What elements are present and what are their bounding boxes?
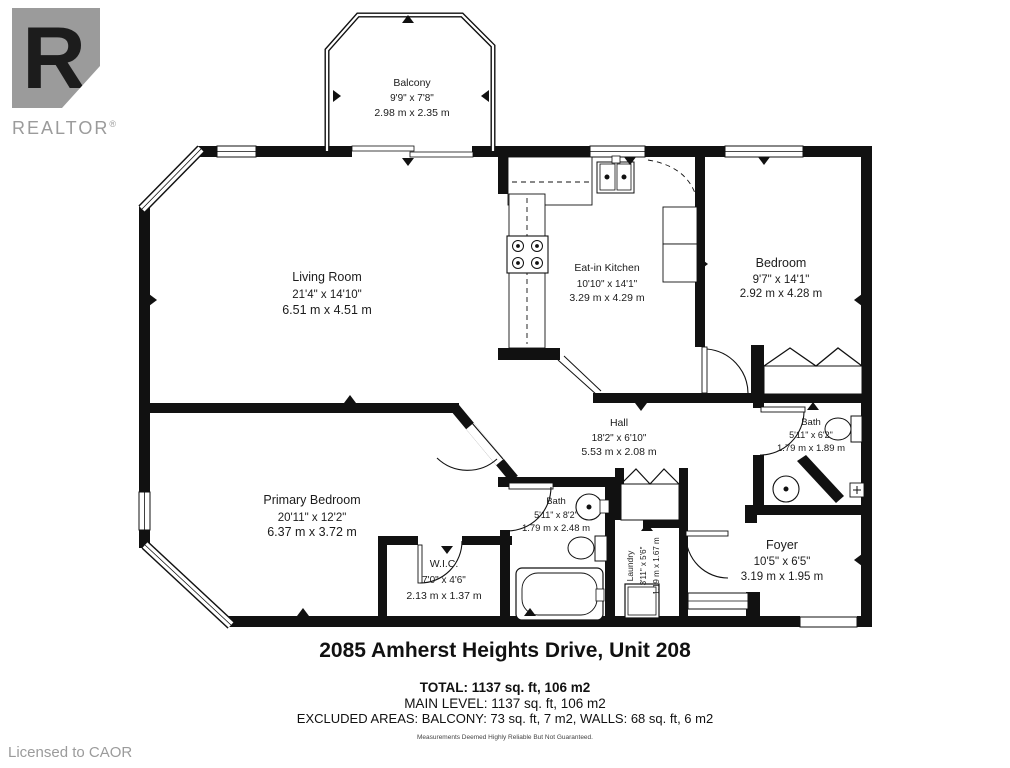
room-dim-imperial: 18'2" x 6'10"	[592, 433, 647, 444]
summary-excluded-areas: EXCLUDED AREAS: BALCONY: 73 sq. ft, 7 m2…	[0, 711, 1010, 726]
room-label-balcony: Balcony 9'9" x 7'8" 2.98 m x 2.35 m	[374, 77, 450, 119]
window	[590, 146, 645, 157]
room-dim-imperial: 9'7" x 14'1"	[753, 274, 810, 286]
room-dim-metric: 1.19 m x 1.67 m	[652, 537, 661, 595]
room-label-bedroom: Bedroom 9'7" x 14'1" 2.92 m x 4.28 m	[740, 256, 822, 300]
room-dim-imperial: 5'11" x 8'2"	[534, 510, 578, 520]
room-name: Bath	[546, 496, 566, 507]
stove-icon	[507, 236, 548, 273]
sliding-door	[352, 146, 473, 157]
room-dim-imperial: 20'11" x 12'2"	[278, 512, 347, 524]
room-dim-metric: 3.19 m x 1.95 m	[741, 571, 823, 583]
room-name: Eat-in Kitchen	[574, 262, 640, 274]
room-label-foyer: Foyer 10'5" x 6'5" 3.19 m x 1.95 m	[741, 538, 823, 583]
toilet-icon	[568, 536, 607, 561]
room-dim-metric: 1.79 m x 2.48 m	[522, 523, 590, 534]
room-name: Living Room	[292, 270, 361, 284]
dimension-arrows	[149, 15, 862, 616]
room-name: W.I.C.	[430, 558, 459, 570]
room-dim-metric: 5.53 m x 2.08 m	[581, 446, 657, 458]
room-dim-metric: 1.79 m x 1.89 m	[777, 443, 845, 454]
interior-walls	[139, 146, 872, 627]
room-label-living-room: Living Room 21'4" x 14'10" 6.51 m x 4.51…	[282, 270, 372, 317]
room-dim-metric: 6.51 m x 4.51 m	[282, 303, 372, 317]
license-text: Licensed to CAOR	[8, 744, 132, 761]
diagonal-window	[145, 545, 231, 625]
room-label-kitchen: Eat-in Kitchen 10'10" x 14'1" 3.29 m x 4…	[569, 262, 645, 304]
room-dim-metric: 2.98 m x 2.35 m	[374, 107, 450, 119]
room-label-hall: Hall 18'2" x 6'10" 5.53 m x 2.08 m	[581, 417, 657, 458]
floor-plan-page: R REALTOR®	[0, 0, 1010, 768]
bathroom-sink-icon	[576, 494, 609, 520]
room-dim-imperial: 10'5" x 6'5"	[754, 556, 811, 568]
window	[725, 146, 803, 157]
bathroom-sink-icon	[773, 476, 799, 502]
room-name: Bedroom	[756, 256, 807, 270]
room-dim-imperial: 9'9" x 7'8"	[390, 93, 434, 104]
room-dim-imperial: 7'0" x 4'6"	[422, 575, 466, 586]
kitchen-opening	[558, 356, 601, 395]
summary-total: TOTAL: 1137 sq. ft, 106 m2	[0, 680, 1010, 695]
door-swing	[437, 423, 503, 470]
room-dim-metric: 2.92 m x 4.28 m	[740, 288, 822, 300]
room-name: Bath	[801, 417, 821, 428]
entry-door	[800, 617, 857, 627]
door-swing	[686, 531, 728, 578]
hall-closet	[621, 469, 679, 520]
room-dim-metric: 3.29 m x 4.29 m	[569, 292, 645, 304]
room-dim-imperial: 10'10" x 14'1"	[577, 279, 638, 290]
diagonal-window	[142, 149, 201, 209]
room-dim-imperial: 21'4" x 14'10"	[292, 289, 361, 301]
room-dim-imperial: 5'11" x 6'2"	[789, 430, 833, 440]
foyer-closet	[688, 593, 748, 609]
room-name: Primary Bedroom	[263, 493, 360, 507]
room-label-primary-bedroom: Primary Bedroom 20'11" x 12'2" 6.37 m x …	[263, 493, 360, 539]
summary-main-level: MAIN LEVEL: 1137 sq. ft, 106 m2	[0, 696, 1010, 711]
room-name: Balcony	[393, 77, 431, 89]
window	[139, 492, 150, 530]
address-title: 2085 Amherst Heights Drive, Unit 208	[0, 639, 1010, 663]
summary-disclaimer: Measurements Deemed Highly Reliable But …	[0, 734, 1010, 741]
room-dim-metric: 6.37 m x 3.72 m	[267, 525, 357, 539]
room-name: Hall	[610, 417, 628, 429]
window	[217, 146, 256, 157]
room-name: Laundry	[625, 550, 635, 581]
bedroom-closet	[764, 348, 862, 394]
room-dim-imperial: 3'11" x 5'6"	[639, 546, 648, 585]
fridge-dashed-arc	[648, 160, 699, 214]
room-name: Foyer	[766, 538, 798, 552]
door-swing	[702, 347, 748, 393]
utility-fixture-icon	[850, 483, 864, 497]
room-dim-metric: 2.13 m x 1.37 m	[406, 590, 482, 602]
